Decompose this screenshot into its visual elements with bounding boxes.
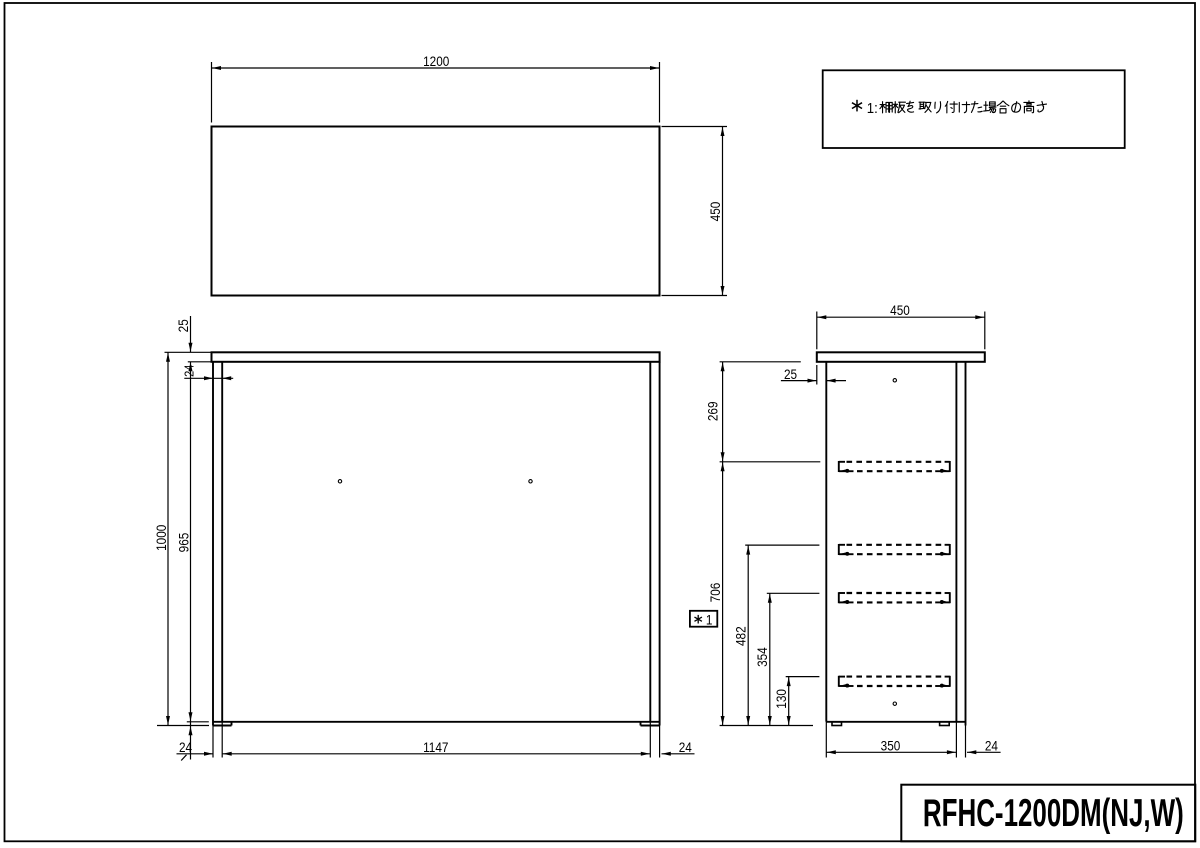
svg-text:1:: 1: (867, 99, 878, 116)
svg-text:24: 24 (679, 740, 692, 755)
svg-text:1000: 1000 (155, 525, 170, 551)
svg-text:1: 1 (706, 612, 713, 628)
svg-text:24: 24 (985, 739, 998, 754)
svg-text:482: 482 (734, 626, 749, 646)
svg-text:965: 965 (177, 533, 192, 553)
svg-text:24: 24 (183, 364, 197, 377)
svg-text:1147: 1147 (423, 740, 448, 755)
svg-text:130: 130 (774, 689, 789, 709)
svg-text:450: 450 (708, 202, 723, 222)
svg-text:RFHC-1200DM(NJ,W): RFHC-1200DM(NJ,W) (923, 791, 1184, 834)
svg-text:350: 350 (881, 739, 901, 754)
svg-text:25: 25 (177, 319, 192, 332)
svg-text:1200: 1200 (423, 54, 449, 69)
svg-text:24: 24 (179, 740, 192, 755)
svg-text:25: 25 (784, 367, 797, 382)
svg-text:450: 450 (890, 303, 910, 318)
svg-text:706: 706 (708, 583, 723, 603)
svg-text:269: 269 (706, 401, 721, 421)
svg-text:354: 354 (755, 647, 770, 667)
